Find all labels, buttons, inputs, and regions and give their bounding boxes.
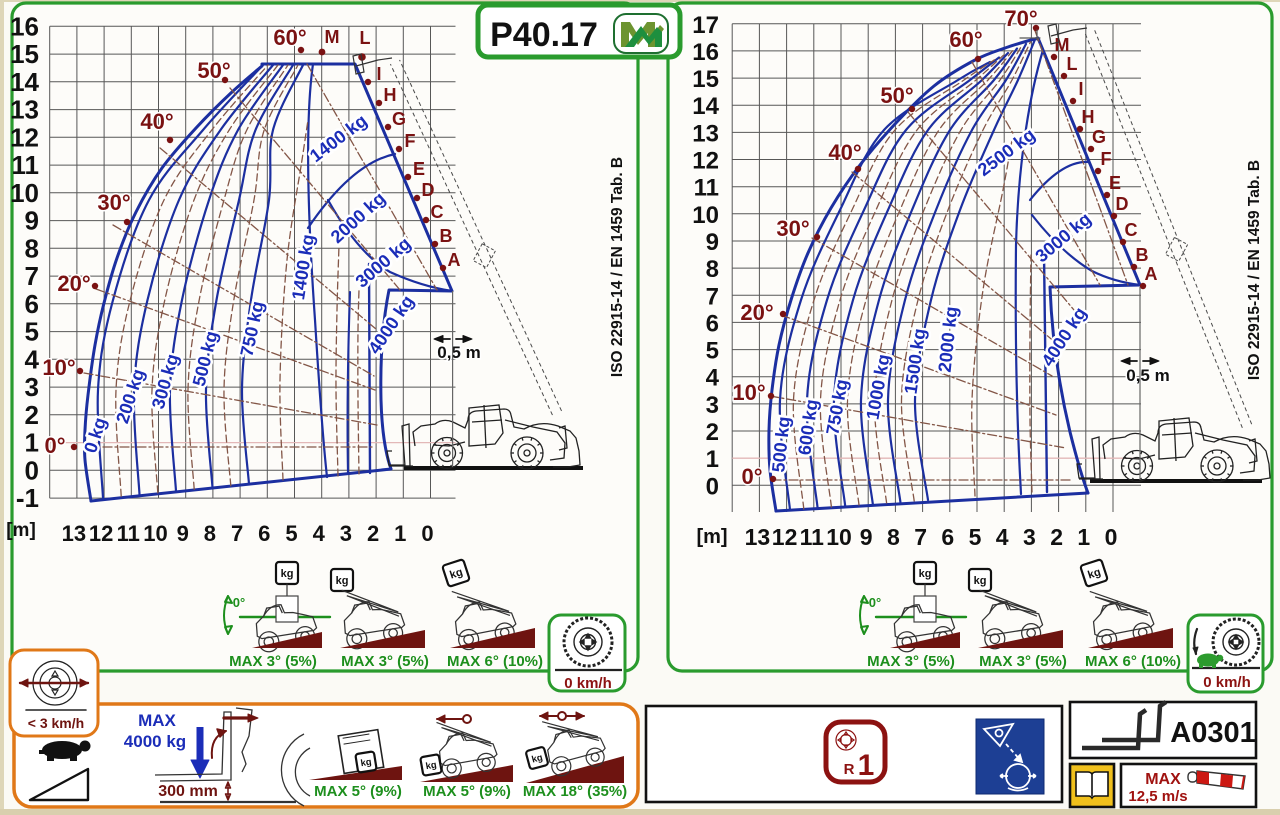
svg-text:70°: 70°	[1004, 6, 1037, 31]
svg-text:6: 6	[25, 289, 39, 319]
svg-text:50°: 50°	[880, 83, 913, 108]
svg-text:MAX 5° (9%): MAX 5° (9%)	[423, 783, 511, 800]
svg-text:12: 12	[10, 122, 39, 152]
svg-text:3: 3	[706, 392, 719, 419]
svg-text:0: 0	[25, 455, 39, 485]
svg-text:ISO 22915-14 / EN 1459 Tab.: ISO 22915-14 / EN 1459 Tab. B	[609, 157, 626, 377]
svg-text:16: 16	[692, 39, 719, 66]
svg-text:13: 13	[62, 521, 86, 546]
svg-text:0°: 0°	[741, 464, 762, 489]
svg-text:9: 9	[25, 206, 39, 236]
svg-text:6: 6	[258, 521, 270, 546]
svg-text:30°: 30°	[776, 216, 809, 241]
svg-text:11: 11	[12, 150, 40, 180]
svg-text:MAX 6° (10%): MAX 6° (10%)	[1085, 653, 1181, 670]
svg-text:5: 5	[25, 317, 39, 347]
svg-text:6: 6	[706, 310, 719, 337]
svg-text:8: 8	[706, 256, 719, 283]
svg-text:6: 6	[941, 524, 954, 550]
svg-text:0: 0	[1105, 524, 1118, 550]
svg-text:L: L	[1067, 54, 1078, 74]
svg-text:0: 0	[706, 473, 719, 500]
svg-text:MAX 3° (5%): MAX 3° (5%)	[867, 653, 955, 670]
svg-text:9: 9	[860, 524, 873, 550]
svg-text:1: 1	[706, 446, 719, 473]
svg-text:0°: 0°	[44, 433, 65, 458]
svg-text:kg: kg	[919, 568, 932, 580]
svg-text:12: 12	[89, 521, 113, 546]
svg-text:kg: kg	[336, 575, 349, 587]
svg-text:10: 10	[692, 202, 719, 229]
svg-text:7: 7	[231, 521, 243, 546]
svg-text:MAX 3° (5%): MAX 3° (5%)	[979, 653, 1067, 670]
svg-text:C: C	[1125, 220, 1138, 240]
svg-text:1: 1	[394, 521, 406, 546]
svg-text:2: 2	[25, 400, 39, 430]
svg-text:11: 11	[800, 524, 825, 550]
svg-text:4: 4	[313, 521, 326, 546]
svg-text:7: 7	[914, 524, 927, 550]
svg-text:0: 0	[421, 521, 433, 546]
svg-text:5: 5	[969, 524, 982, 550]
svg-text:2: 2	[706, 419, 719, 446]
svg-text:8: 8	[25, 233, 39, 263]
svg-text:20°: 20°	[740, 300, 773, 325]
svg-text:B: B	[1136, 245, 1149, 265]
svg-text:40°: 40°	[828, 140, 861, 165]
svg-text:15: 15	[692, 66, 719, 93]
svg-text:11: 11	[694, 175, 719, 202]
svg-text:I: I	[376, 64, 381, 84]
svg-text:H: H	[1082, 107, 1095, 127]
svg-text:15: 15	[10, 39, 39, 69]
svg-text:B: B	[440, 226, 453, 246]
svg-text:MAX 3° (5%): MAX 3° (5%)	[229, 653, 317, 670]
svg-text:2: 2	[367, 521, 379, 546]
svg-text:A: A	[448, 250, 461, 270]
svg-text:[m]: [m]	[696, 526, 727, 548]
svg-text:10: 10	[10, 178, 39, 208]
svg-text:0°: 0°	[233, 595, 245, 610]
svg-text:F: F	[1101, 149, 1112, 169]
svg-text:0,5 m: 0,5 m	[437, 343, 480, 362]
svg-text:9: 9	[706, 229, 719, 256]
svg-text:L: L	[360, 28, 371, 48]
svg-text:ISO 22915-14 / EN 1459 Tab.: ISO 22915-14 / EN 1459 Tab. B	[1246, 160, 1263, 380]
svg-text:20°: 20°	[57, 271, 90, 296]
svg-text:A: A	[1145, 264, 1158, 284]
svg-text:MAX 5° (9%): MAX 5° (9%)	[314, 783, 402, 800]
svg-text:R: R	[844, 761, 855, 778]
svg-text:M: M	[1055, 35, 1070, 55]
svg-text:10°: 10°	[42, 355, 75, 380]
svg-text:kg: kg	[974, 575, 987, 587]
svg-text:10: 10	[143, 521, 167, 546]
svg-text:11: 11	[117, 521, 140, 546]
svg-text:4: 4	[25, 344, 40, 374]
svg-text:12: 12	[692, 148, 719, 175]
svg-text:10°: 10°	[732, 380, 765, 405]
svg-text:0 km/h: 0 km/h	[1203, 674, 1251, 691]
svg-text:< 3 km/h: < 3 km/h	[28, 715, 84, 731]
svg-text:4000 kg: 4000 kg	[124, 732, 186, 751]
svg-text:7: 7	[25, 261, 39, 291]
svg-text:5: 5	[285, 521, 297, 546]
svg-text:G: G	[1092, 127, 1106, 147]
svg-text:[m]: [m]	[6, 520, 36, 541]
svg-text:D: D	[1116, 194, 1129, 214]
svg-text:4: 4	[706, 365, 720, 392]
svg-text:12: 12	[772, 524, 798, 550]
svg-text:9: 9	[177, 521, 189, 546]
svg-text:MAX 6° (10%): MAX 6° (10%)	[447, 653, 543, 670]
svg-text:E: E	[1109, 173, 1121, 193]
svg-text:300 mm: 300 mm	[158, 783, 218, 800]
svg-text:D: D	[422, 180, 435, 200]
svg-text:8: 8	[204, 521, 216, 546]
svg-text:kg: kg	[425, 759, 438, 771]
svg-text:E: E	[413, 159, 425, 179]
svg-text:F: F	[405, 131, 416, 151]
svg-text:A0301: A0301	[1170, 717, 1255, 749]
svg-text:17: 17	[692, 12, 719, 39]
svg-text:MAX: MAX	[138, 711, 176, 730]
svg-text:MAX 18° (35%): MAX 18° (35%)	[523, 783, 627, 800]
svg-text:H: H	[384, 85, 397, 105]
svg-text:C: C	[431, 202, 444, 222]
svg-text:14: 14	[10, 67, 39, 97]
svg-text:-1: -1	[16, 483, 39, 513]
svg-text:3: 3	[25, 372, 39, 402]
svg-text:3: 3	[1023, 524, 1036, 550]
svg-text:40°: 40°	[140, 109, 173, 134]
svg-text:kg: kg	[281, 568, 294, 580]
svg-text:13: 13	[10, 95, 39, 125]
svg-text:2: 2	[1050, 524, 1063, 550]
svg-text:5: 5	[706, 338, 719, 365]
svg-text:13: 13	[692, 120, 719, 147]
svg-text:1: 1	[1077, 524, 1090, 550]
svg-text:I: I	[1078, 79, 1083, 99]
svg-text:4: 4	[996, 524, 1009, 550]
svg-text:60°: 60°	[273, 25, 306, 50]
svg-text:16: 16	[10, 11, 39, 41]
svg-text:MAX 3° (5%): MAX 3° (5%)	[341, 653, 429, 670]
svg-text:12,5 m/s: 12,5 m/s	[1128, 788, 1187, 805]
svg-text:13: 13	[745, 524, 771, 550]
svg-text:1: 1	[25, 428, 39, 458]
svg-text:kg: kg	[360, 757, 373, 769]
svg-text:0,5 m: 0,5 m	[1126, 366, 1169, 385]
svg-text:0°: 0°	[869, 595, 881, 610]
svg-text:1: 1	[858, 749, 875, 782]
svg-text:MAX: MAX	[1145, 771, 1181, 788]
svg-text:P40.17: P40.17	[490, 16, 598, 54]
svg-text:0 km/h: 0 km/h	[564, 675, 612, 692]
svg-text:60°: 60°	[949, 27, 982, 52]
svg-text:G: G	[392, 109, 406, 129]
svg-text:8: 8	[887, 524, 900, 550]
svg-text:30°: 30°	[97, 190, 130, 215]
svg-text:3: 3	[340, 521, 352, 546]
svg-text:14: 14	[692, 93, 719, 120]
svg-text:7: 7	[706, 283, 719, 310]
svg-text:10: 10	[826, 524, 852, 550]
svg-text:M: M	[325, 27, 340, 47]
